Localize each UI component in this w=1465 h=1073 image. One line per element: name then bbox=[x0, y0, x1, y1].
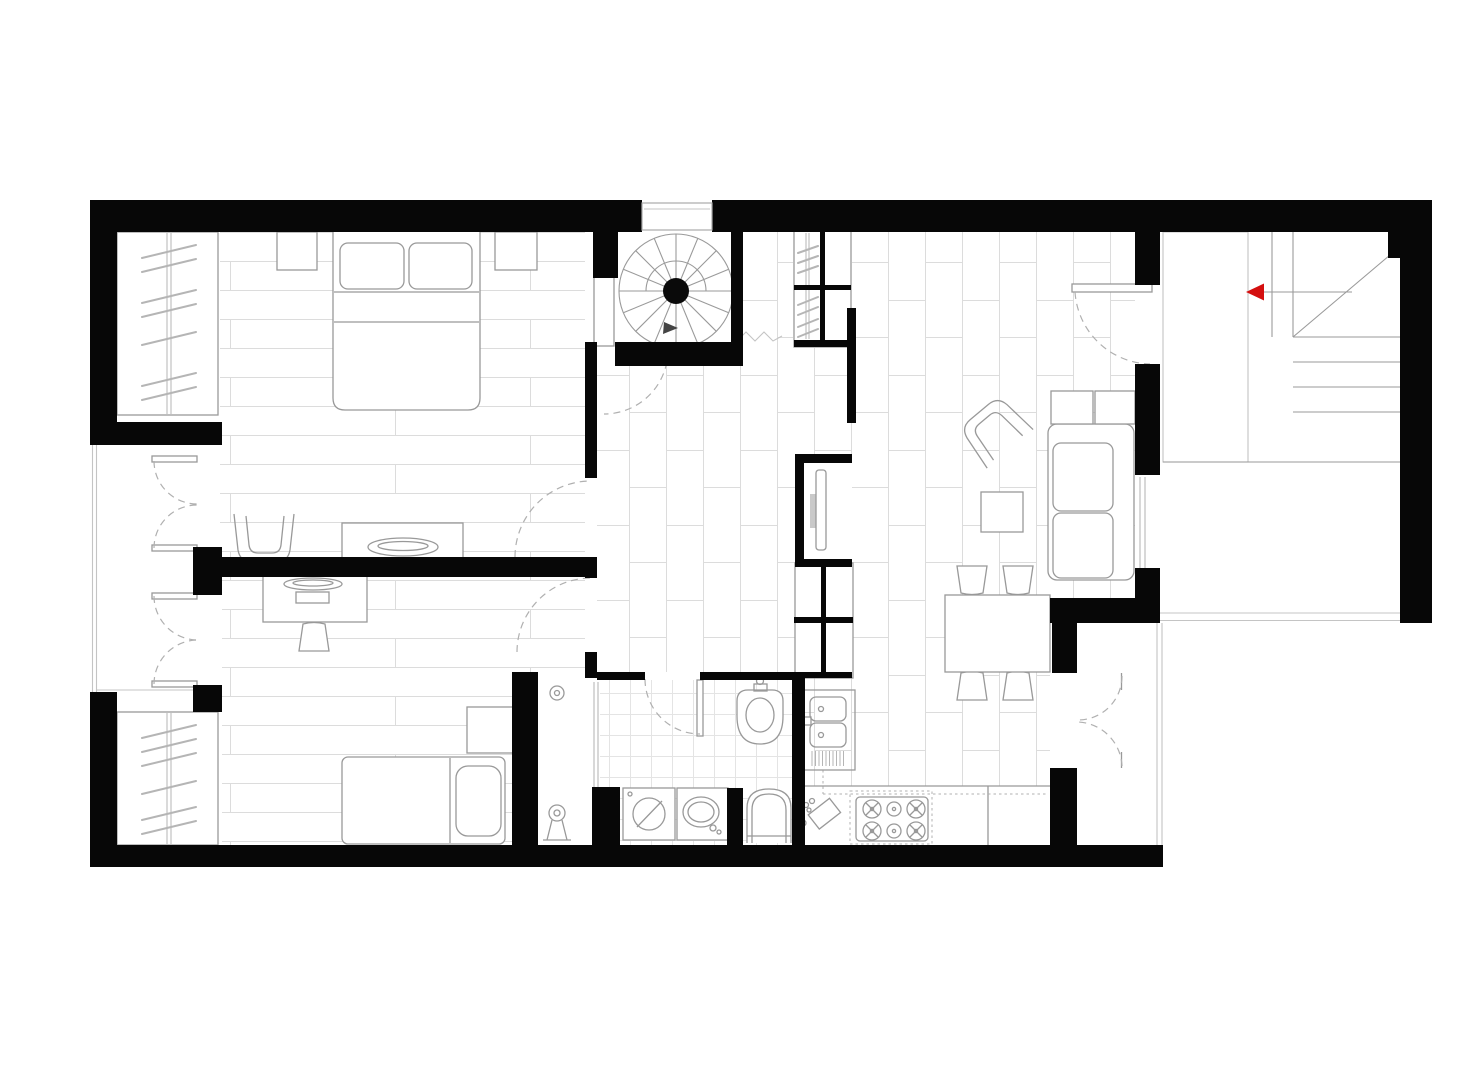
wardrobe-with-hangers bbox=[117, 232, 218, 415]
nightstand-left bbox=[277, 232, 317, 270]
tv-niche-left bbox=[795, 454, 804, 567]
spiral-column bbox=[663, 278, 689, 304]
coffee-table bbox=[981, 492, 1023, 532]
wall-shower-left bbox=[512, 672, 538, 865]
cabinet-divider-v bbox=[821, 565, 826, 677]
washing-machine bbox=[623, 788, 675, 840]
door-leaf bbox=[152, 545, 197, 551]
sofa-cushion-2 bbox=[1053, 513, 1113, 578]
wall-left-lower bbox=[90, 692, 117, 865]
entry-recess-top bbox=[642, 203, 712, 230]
single-bed bbox=[342, 757, 505, 844]
closet-bottom bbox=[794, 340, 851, 347]
double-bed bbox=[333, 230, 480, 410]
dining-chair-4 bbox=[1003, 672, 1033, 701]
pillow-right bbox=[409, 243, 472, 289]
television bbox=[816, 470, 826, 550]
wall-hall-fin bbox=[847, 308, 856, 423]
wall-shower-bottom bbox=[592, 787, 620, 845]
closet-divider-h bbox=[794, 285, 851, 290]
wall-living-right-c bbox=[1135, 568, 1160, 623]
sideboard bbox=[1051, 391, 1135, 424]
wall-stair-bottom bbox=[615, 342, 743, 366]
floor-plan-svg bbox=[0, 0, 1465, 1073]
wall-living-right-a bbox=[1135, 232, 1160, 285]
wall-stair-left bbox=[593, 232, 618, 278]
sofa-two-seat bbox=[1048, 424, 1134, 580]
wall-top-left bbox=[90, 200, 642, 232]
door-leaf bbox=[1072, 284, 1152, 292]
entry-sill bbox=[642, 203, 712, 230]
sideboard-right bbox=[1095, 391, 1135, 424]
wall-hall-left-a bbox=[585, 342, 597, 478]
nightstand bbox=[467, 707, 513, 753]
wall-balcony-top bbox=[90, 422, 222, 445]
wall-bathroom-kitchen bbox=[792, 672, 805, 865]
pillow bbox=[456, 766, 501, 836]
sofa-cushion-1 bbox=[1053, 443, 1113, 511]
dining-chair-1 bbox=[957, 566, 987, 595]
wall-left-upper bbox=[90, 232, 117, 445]
wall-balcony-bottom bbox=[193, 685, 222, 712]
wall-toilet-divider bbox=[727, 788, 743, 845]
wall-stair-nub bbox=[1388, 232, 1402, 258]
washbasin bbox=[677, 788, 728, 840]
door-leaf bbox=[152, 681, 197, 687]
sideboard-left bbox=[1051, 391, 1093, 424]
shower-room-area bbox=[538, 680, 592, 845]
dining-chair-3 bbox=[957, 672, 987, 701]
dining-table bbox=[945, 595, 1050, 672]
spiral-staircase bbox=[619, 234, 733, 348]
wall-top-right bbox=[712, 200, 1432, 232]
wall-bedroom-divider bbox=[193, 557, 588, 577]
door-leaf bbox=[152, 456, 197, 462]
wall-bathroom-top-b bbox=[700, 672, 792, 680]
dining-chair-2 bbox=[1003, 566, 1033, 595]
wardrobe-with-hangers bbox=[117, 712, 218, 845]
wall-kitchen-door-upper bbox=[1052, 623, 1077, 673]
door-leaf bbox=[594, 276, 614, 346]
cabinet-bottom bbox=[795, 672, 852, 678]
door-leaf bbox=[152, 593, 197, 599]
toilet bbox=[747, 789, 791, 843]
wall-living-right-b bbox=[1135, 364, 1160, 475]
toilet-outer bbox=[747, 789, 791, 843]
desk bbox=[263, 571, 367, 622]
floor-plan-page bbox=[0, 0, 1465, 1073]
wall-hall-left-c bbox=[585, 652, 597, 678]
wall-bathroom-top-a bbox=[597, 672, 645, 680]
wall-bottom bbox=[90, 845, 1163, 867]
nightstand-right bbox=[495, 232, 537, 270]
laptop-base bbox=[296, 592, 329, 603]
kitchen-vestibule bbox=[1077, 623, 1159, 845]
wall-kitchen-door-lower bbox=[1050, 768, 1077, 845]
wall-right bbox=[1400, 200, 1432, 623]
door-leaf bbox=[697, 680, 703, 736]
desk-chair bbox=[299, 623, 329, 652]
pillow-left bbox=[340, 243, 404, 289]
